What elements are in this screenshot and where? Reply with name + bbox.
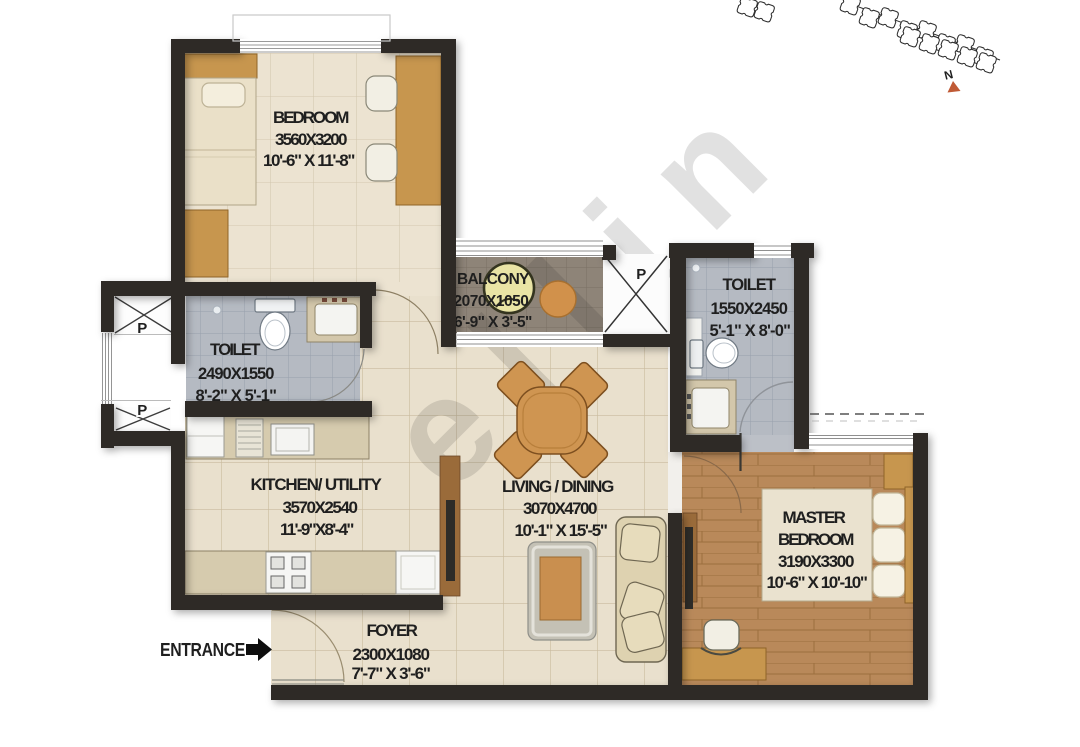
svg-text:6'-9" X 3'-5": 6'-9" X 3'-5" [454,314,532,331]
svg-text:ENTRANCE: ENTRANCE [160,640,245,660]
svg-text:2300X1080: 2300X1080 [353,645,430,664]
svg-text:MASTER: MASTER [783,508,846,527]
svg-text:10'-6" X 10'-10": 10'-6" X 10'-10" [767,573,868,592]
svg-text:3190X3300: 3190X3300 [778,552,854,571]
svg-text:P: P [636,266,646,283]
svg-text:3070X4700: 3070X4700 [523,499,597,518]
svg-text:P: P [137,402,147,419]
svg-text:11'-9"X8'-4": 11'-9"X8'-4" [280,520,354,539]
svg-text:3560X3200: 3560X3200 [275,130,347,149]
svg-text:TOILET: TOILET [723,276,776,294]
svg-text:BEDROOM: BEDROOM [778,530,854,549]
svg-text:LIVING / DINING: LIVING / DINING [502,477,614,496]
svg-text:2490X1550: 2490X1550 [198,365,274,383]
svg-text:BALCONY: BALCONY [457,271,530,288]
svg-text:5'-1" X 8'-0": 5'-1" X 8'-0" [710,322,791,340]
svg-text:7'-7" X 3'-6": 7'-7" X 3'-6" [352,664,431,683]
svg-text:FOYER: FOYER [367,621,418,640]
svg-text:KITCHEN/ UTILITY: KITCHEN/ UTILITY [251,475,383,494]
svg-text:2070X1050: 2070X1050 [454,293,529,310]
svg-text:1550X2450: 1550X2450 [711,300,788,318]
svg-text:TOILET: TOILET [210,341,260,359]
svg-text:10'-6" X 11'-8": 10'-6" X 11'-8" [263,151,355,170]
svg-text:3570X2540: 3570X2540 [283,498,358,517]
svg-text:BEDROOM: BEDROOM [273,108,349,127]
svg-text:10'-1" X 15'-5": 10'-1" X 15'-5" [515,521,608,540]
